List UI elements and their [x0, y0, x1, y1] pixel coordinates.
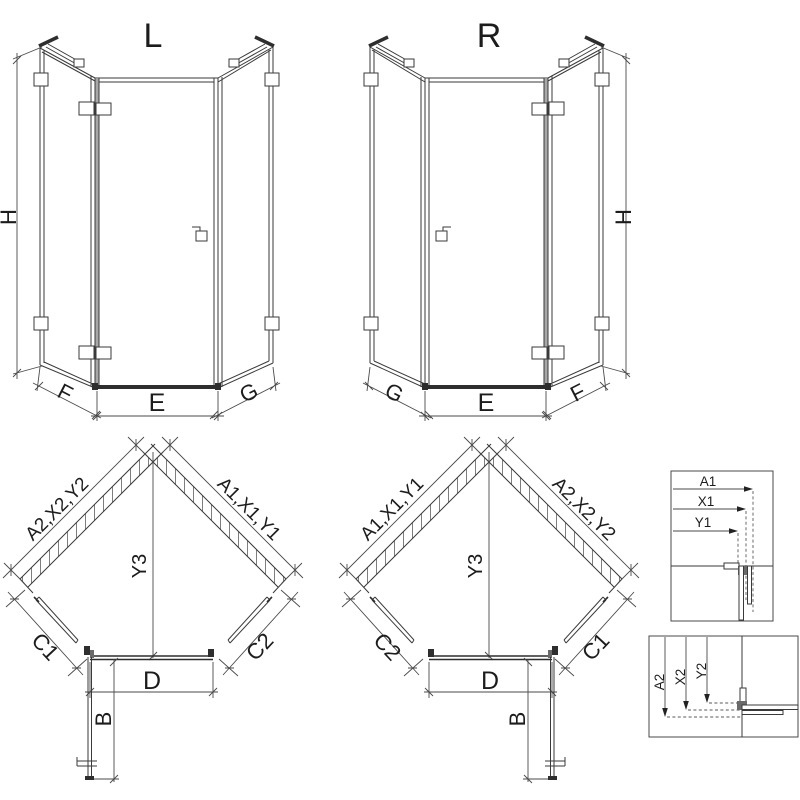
detail-label-a2: A2	[652, 674, 667, 691]
detail-label-x2: X2	[673, 669, 688, 686]
dim-label-f-left: F	[54, 378, 77, 406]
dim-label-height-left: H	[0, 209, 21, 225]
wall-label-right: A1,X1,Y1	[213, 474, 285, 546]
dim-label-e-right: E	[478, 389, 495, 417]
dim-label-e-left: E	[149, 389, 166, 417]
detail-label-y2: Y2	[694, 663, 709, 680]
arrowhead-x2	[683, 701, 689, 710]
detail-label-y1: Y1	[695, 515, 712, 530]
dim-label-c1: C1	[577, 628, 614, 666]
dim-label-entry: D	[481, 667, 499, 695]
dim-label-height-right: H	[611, 209, 636, 225]
wall-label-left: A2,X2,Y2	[22, 474, 94, 546]
detail-border	[671, 471, 773, 621]
arrowhead-a1	[744, 486, 753, 492]
arrowhead-y1	[729, 528, 738, 534]
wall-label-left: A1,X1,Y1	[357, 474, 429, 546]
detail-box-horizontal: A1 X1 Y1	[671, 471, 773, 621]
dim-label-door-open: B	[505, 712, 530, 727]
plan-left-view: A2,X2,Y2 A1,X1,Y1 Y3 C1 C2 D B	[3, 437, 303, 783]
dim-label-c2: C2	[241, 628, 278, 666]
variant-title-right: R	[477, 17, 502, 55]
wall-profile-section	[724, 563, 752, 620]
variant-title-left: L	[144, 17, 163, 55]
dim-label-depth: Y3	[465, 554, 487, 578]
dim-label-c2: C2	[369, 628, 406, 666]
plan-right-view: A1,X1,Y1 A2,X2,Y2 Y3 C2 C1 D B	[339, 437, 639, 783]
dim-label-g-right: G	[381, 378, 408, 408]
drawing-canvas: L H F E G R H G E F A2,X2,Y2 A1,X1,Y1 Y3…	[0, 0, 800, 800]
detail-box-vertical: A2 X2 Y2	[649, 636, 798, 737]
arrowhead-y2	[704, 694, 710, 703]
dim-label-c1: C1	[27, 628, 64, 666]
detail-label-x1: X1	[698, 494, 715, 509]
detail-label-a1: A1	[700, 474, 717, 489]
wall-profile-section	[737, 688, 798, 715]
dim-label-g-left: G	[235, 378, 262, 408]
shower-enclosure-technical-drawing: L H F E G R H G E F A2,X2,Y2 A1,X1,Y1 Y3…	[0, 0, 800, 800]
arrowhead-x1	[737, 506, 746, 512]
detail-border	[649, 636, 798, 737]
elevation-right-view: R H G E F	[363, 17, 636, 421]
dim-label-f-right: F	[566, 378, 589, 406]
wall-label-right: A2,X2,Y2	[548, 474, 620, 546]
arrowhead-a2	[662, 708, 668, 717]
dim-label-depth: Y3	[129, 554, 151, 578]
dim-label-door-open: B	[91, 712, 116, 727]
elevation-left-view: L H F E G	[0, 17, 280, 421]
dim-label-entry: D	[143, 667, 161, 695]
